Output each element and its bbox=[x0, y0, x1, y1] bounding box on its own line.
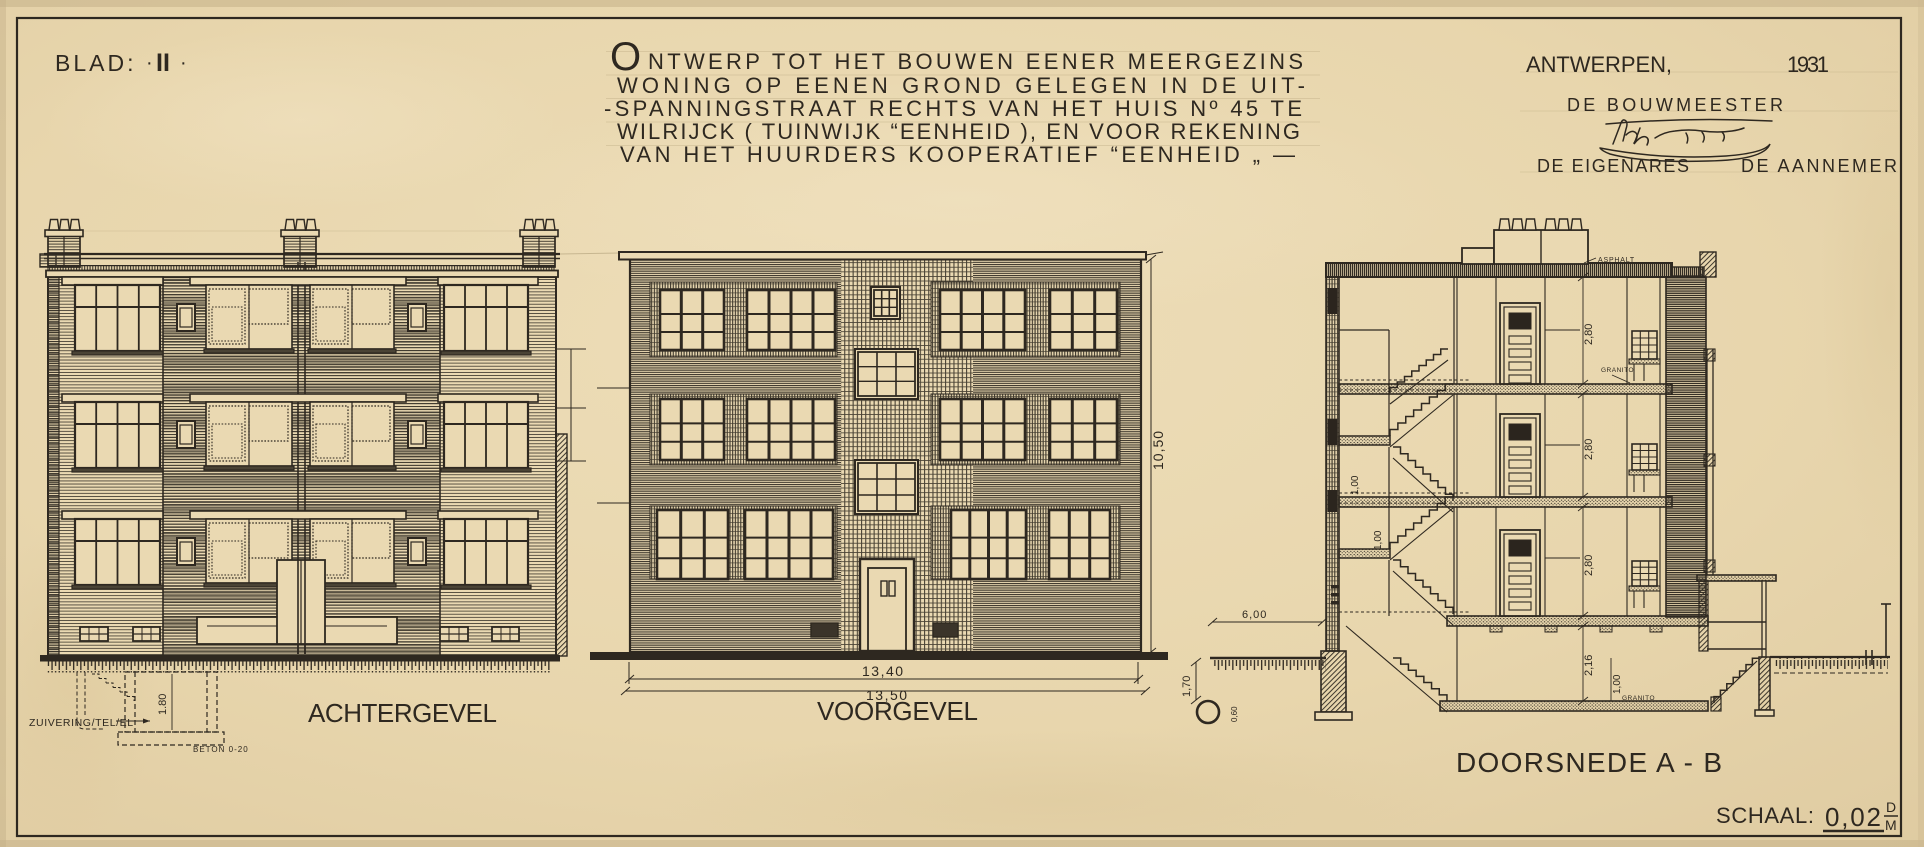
svg-text:SCHAAL:: SCHAAL: bbox=[1716, 803, 1814, 828]
svg-text:GRANITO: GRANITO bbox=[1622, 695, 1655, 702]
svg-text:13,40: 13,40 bbox=[862, 663, 905, 679]
svg-text:1,00: 1,00 bbox=[1612, 674, 1623, 694]
svg-text:2,80: 2,80 bbox=[1583, 555, 1595, 576]
svg-text:II: II bbox=[156, 49, 170, 77]
svg-text:0,60: 0,60 bbox=[1230, 706, 1239, 722]
svg-text:DE EIGENARES: DE EIGENARES bbox=[1537, 156, 1689, 176]
svg-text:DE AANNEMER: DE AANNEMER bbox=[1741, 156, 1897, 176]
svg-text:1,00: 1,00 bbox=[1373, 530, 1384, 550]
svg-text:2,80: 2,80 bbox=[1583, 324, 1595, 345]
svg-text:BLAD:: BLAD: bbox=[55, 50, 136, 76]
svg-text:1,00: 1,00 bbox=[1350, 475, 1361, 495]
svg-text:DOORSNEDE A - B: DOORSNEDE A - B bbox=[1456, 747, 1722, 778]
svg-text:1.80: 1.80 bbox=[157, 694, 169, 715]
svg-text:2,80: 2,80 bbox=[1583, 439, 1595, 460]
svg-text:M: M bbox=[1885, 817, 1897, 833]
svg-text:VOORGEVEL: VOORGEVEL bbox=[817, 696, 978, 726]
svg-text:WILRIJCK ( TUINWIJK “EENHEID: WILRIJCK ( TUINWIJK “EENHEID ), EN VOOR … bbox=[617, 119, 1300, 144]
svg-text:10,50: 10,50 bbox=[1150, 430, 1166, 470]
svg-text:·: · bbox=[146, 52, 153, 74]
svg-text:GRANITO: GRANITO bbox=[1601, 367, 1634, 374]
svg-text:2,16: 2,16 bbox=[1583, 655, 1595, 676]
svg-text:0,02: 0,02 bbox=[1825, 802, 1881, 832]
svg-text:NTWERP TOT HET BOUWEN EENE: NTWERP TOT HET BOUWEN EENER MEERGEZINS bbox=[648, 49, 1303, 74]
svg-text:ACHTERGEVEL: ACHTERGEVEL bbox=[308, 698, 497, 728]
svg-text:6,00: 6,00 bbox=[1242, 609, 1267, 621]
svg-text:1,70: 1,70 bbox=[1181, 676, 1193, 697]
svg-text:ZUIVERING/TEL/EL: ZUIVERING/TEL/EL bbox=[29, 717, 134, 729]
svg-text:BETON 0-20: BETON 0-20 bbox=[193, 745, 249, 754]
svg-text:D: D bbox=[1886, 799, 1896, 815]
svg-text:-SPANNINGSTRAAT RECHTS VAN: -SPANNINGSTRAAT RECHTS VAN HET HUIS Nº 4… bbox=[604, 96, 1302, 121]
svg-text:·: · bbox=[180, 52, 187, 74]
svg-text:ANTWERPEN,: ANTWERPEN, bbox=[1526, 52, 1672, 77]
svg-text:ASPHALT: ASPHALT bbox=[1598, 257, 1635, 264]
svg-text:1931: 1931 bbox=[1787, 52, 1829, 77]
